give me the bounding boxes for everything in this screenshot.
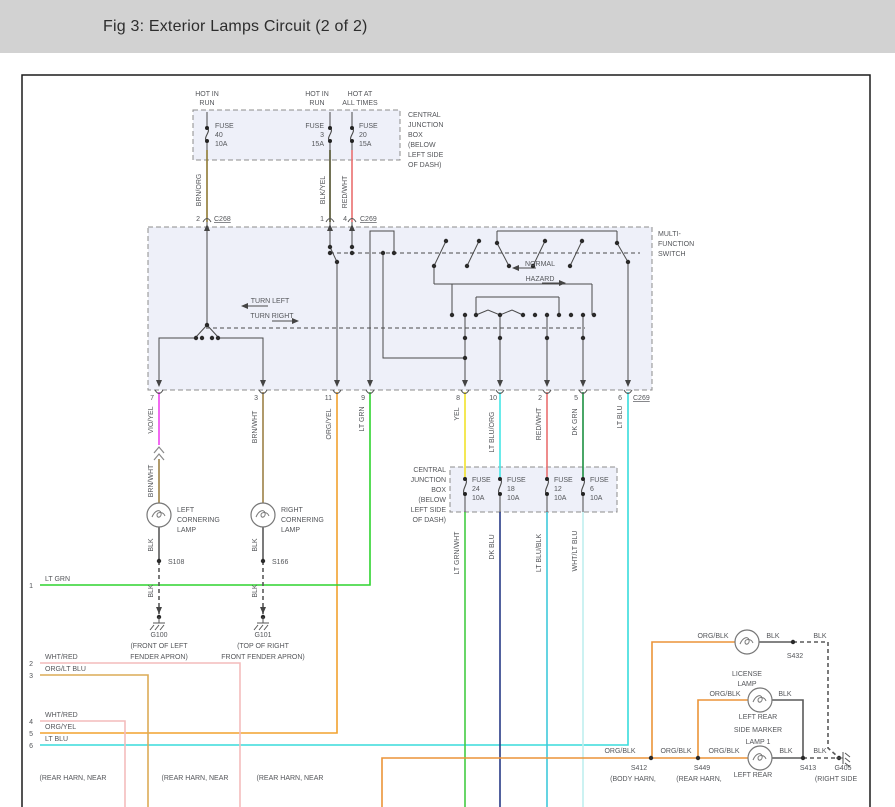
diagram-label: (REAR HARN, NEAR [162, 775, 229, 782]
diagram-label: 10 [489, 395, 497, 402]
diagram-label: S413 [800, 765, 816, 772]
fuse-terminal [328, 126, 332, 130]
diagram-label: LT GRN [45, 576, 70, 583]
wire-wht-red-row2 [40, 663, 240, 807]
junction-dot [450, 313, 454, 317]
diagram-label: 10A [554, 495, 567, 502]
junction-dot [432, 264, 436, 268]
ground-g100-icon [155, 625, 159, 630]
diagram-label: ORG/YEL [326, 408, 333, 439]
diagram-label: 2 [29, 661, 33, 668]
diagram-label: LAMP [177, 527, 196, 534]
diagram-label: (BELOW [418, 497, 446, 504]
diagram-label: 2 [538, 395, 542, 402]
junction-dot [463, 336, 467, 340]
wire-org-yel [40, 392, 337, 733]
junction-dot [801, 756, 805, 760]
diagram-label: 12 [554, 486, 562, 493]
junction-dot [521, 313, 525, 317]
diagram-label: S108 [168, 559, 184, 566]
diagram-label: SIDE MARKER [734, 727, 782, 734]
diagram-label: FUNCTION [658, 241, 694, 248]
diagram-label: HOT AT [348, 91, 373, 98]
diagram-label: BLK [252, 538, 259, 552]
junction-dot [568, 264, 572, 268]
diagram-label: S412 [631, 765, 647, 772]
diagram-label: JUNCTION [408, 122, 443, 129]
diagram-label: 3 [29, 673, 33, 680]
diagram-label: BLK [778, 691, 792, 698]
junction-dot [498, 336, 502, 340]
left-rear-side-marker-lamp-2-icon [748, 746, 772, 770]
fuse-terminal [581, 477, 585, 481]
diagram-label: LAMP [737, 681, 756, 688]
fuse-terminal [498, 492, 502, 496]
diagram-label: 10A [590, 495, 603, 502]
diagram-label: 1 [29, 583, 33, 590]
junction-dot [580, 239, 584, 243]
diagram-label: LAMP 1 [746, 739, 771, 746]
junction-dot [261, 559, 265, 563]
diagram-label: RUN [309, 100, 324, 107]
ground-g100-icon [160, 625, 164, 630]
junction-dot [592, 313, 596, 317]
diagram-label: ORG/YEL [45, 724, 76, 731]
diagram-label: BRN/WHT [252, 410, 259, 443]
diagram-label: CENTRAL [408, 112, 441, 119]
ground-g405-icon [845, 758, 850, 762]
junction-dot [498, 313, 502, 317]
diagram-label: FUSE [305, 123, 324, 130]
junction-dot [581, 313, 585, 317]
fuse-terminal [581, 492, 585, 496]
diagram-label: FUSE [215, 123, 234, 130]
diagram-label: BOX [431, 487, 446, 494]
diagram-label: C269 [360, 216, 377, 223]
junction-dot [696, 756, 700, 760]
diagram-label: FENDER APRON) [130, 654, 188, 661]
inline-connector-icon [154, 447, 164, 453]
diagram-label: TURN LEFT [251, 298, 290, 305]
junction-dot [615, 241, 619, 245]
diagram-label: FRONT FENDER APRON) [221, 654, 305, 661]
diagram-label: LEFT SIDE [411, 507, 447, 514]
left-cornering-lamp-icon [147, 503, 171, 527]
diagram-label: LT GRN/WHT [454, 531, 461, 575]
diagram-label: DK GRN [572, 408, 579, 435]
diagram-label: BLK [813, 633, 827, 640]
diagram-label: RUN [199, 100, 214, 107]
junction-dot [335, 260, 339, 264]
junction-dot [507, 264, 511, 268]
diagram-label: ORG/BLK [709, 691, 740, 698]
diagram-label: (RIGHT SIDE [815, 776, 858, 783]
diagram-label: S166 [272, 559, 288, 566]
diagram-label: DK BLU [489, 534, 496, 559]
diagram-label: BLK/YEL [320, 176, 327, 205]
diagram-label: G405 [834, 765, 851, 772]
junction-dot [194, 336, 198, 340]
junction-dot [477, 239, 481, 243]
diagram-label: BLK [148, 538, 155, 552]
junction-dot [350, 251, 354, 255]
diagram-label: 10A [215, 141, 228, 148]
diagram-label: BOX [408, 132, 423, 139]
diagram-label: FUSE [590, 477, 609, 484]
diagram-label: G100 [150, 632, 167, 639]
diagram-label: LEFT [177, 507, 195, 514]
diagram-label: ORG/BLK [604, 748, 635, 755]
diagram-label: 4 [29, 719, 33, 726]
diagram-label: 5 [574, 395, 578, 402]
junction-dot [381, 251, 385, 255]
diagram-label: (BELOW [408, 142, 436, 149]
diagram-label: 10A [507, 495, 520, 502]
junction-dot [495, 241, 499, 245]
fuse-terminal [205, 126, 209, 130]
junction-dot [465, 264, 469, 268]
diagram-label: RED/WHT [536, 407, 543, 440]
fuse-terminal [545, 492, 549, 496]
ground-g405-icon [845, 753, 850, 757]
ground-g101-icon [264, 625, 268, 630]
diagram-label: G101 [254, 632, 271, 639]
diagram-label: 3 [320, 132, 324, 139]
diagram-label: ORG/BLK [708, 748, 739, 755]
diagram-label: LEFT REAR [739, 714, 777, 721]
diagram-label: ALL TIMES [342, 100, 378, 107]
diagram-label: 11 [325, 395, 332, 402]
diagram-label: HAZARD [526, 276, 555, 283]
diagram-label: 5 [29, 731, 33, 738]
central-junction-box-top [193, 110, 400, 160]
diagram-label: BLK [766, 633, 780, 640]
multi-function-switch-box [148, 227, 652, 390]
wiring-diagram: HOT INRUNHOT INRUNHOT ATALL TIMESFUSE401… [0, 53, 895, 807]
diagram-label: 7 [150, 395, 154, 402]
junction-dot [328, 251, 332, 255]
junction-dot [649, 756, 653, 760]
fuse-terminal [463, 492, 467, 496]
diagram-label: SWITCH [658, 251, 686, 258]
fuse-terminal [350, 126, 354, 130]
left-rear-side-marker-lamp-1-icon [748, 688, 772, 712]
diagram-label: 4 [343, 216, 347, 223]
diagram-label: HOT IN [305, 91, 329, 98]
fuse-terminal [328, 139, 332, 143]
diagram-label: (REAR HARN, NEAR [40, 775, 107, 782]
diagram-label: BRN/WHT [148, 464, 155, 497]
junction-dot [216, 336, 220, 340]
junction-dot [463, 356, 467, 360]
junction-dot [626, 260, 630, 264]
diagram-label: HOT IN [195, 91, 219, 98]
diagram-label: (BODY HARN, [610, 776, 656, 783]
diagram-label: OF DASH) [413, 517, 446, 524]
diagram-label: WHT/LT BLU [572, 531, 579, 572]
diagram-label: S432 [787, 653, 803, 660]
diagram-label: 18 [507, 486, 515, 493]
diagram-label: ORG/LT BLU [45, 666, 86, 673]
diagram-label: FUSE [472, 477, 491, 484]
diagram-label: LT BLU [45, 736, 68, 743]
diagram-label: JUNCTION [411, 477, 446, 484]
diagram-label: 3 [254, 395, 258, 402]
junction-dot [328, 245, 332, 249]
diagram-label: (REAR HARN, [676, 776, 722, 783]
fuse-terminal [205, 139, 209, 143]
diagram-label: ORG/BLK [697, 633, 728, 640]
diagram-label: LEFT REAR [734, 772, 772, 779]
diagram-label: LAMP [281, 527, 300, 534]
diagram-label: 6 [29, 743, 33, 750]
diagram-label: 10A [472, 495, 485, 502]
arrow-icon [260, 607, 266, 614]
diagram-label: (FRONT OF LEFT [130, 643, 188, 650]
ground-g100-icon [150, 625, 154, 630]
license-lamp-icon [735, 630, 759, 654]
diagram-label: 15A [312, 141, 325, 148]
fuse-terminal [545, 477, 549, 481]
title-bar: Fig 3: Exterior Lamps Circuit (2 of 2) [0, 0, 895, 53]
junction-dot [543, 239, 547, 243]
diagram-label: RED/WHT [342, 175, 349, 208]
diagram-label: WHT/RED [45, 654, 78, 661]
diagram-label: MULTI- [658, 231, 681, 238]
junction-dot [545, 313, 549, 317]
diagram-label: 15A [359, 141, 372, 148]
diagram-label: LICENSE [732, 671, 762, 678]
diagram-border [22, 75, 870, 807]
diagram-label: CORNERING [281, 517, 324, 524]
diagram-label: BRN/ORG [196, 174, 203, 207]
fuse-terminal [350, 139, 354, 143]
diagram-label: VIO/YEL [148, 406, 155, 433]
diagram-label: LEFT SIDE [408, 152, 444, 159]
diagram-label: BLK [148, 584, 155, 598]
diagram-label: 1 [320, 216, 324, 223]
junction-dot [157, 559, 161, 563]
right-cornering-lamp-icon [251, 503, 275, 527]
diagram-label: BLK [813, 748, 827, 755]
junction-dot [474, 313, 478, 317]
diagram-label: BLK [779, 748, 793, 755]
diagram-label: 24 [472, 486, 480, 493]
diagram-label: 9 [361, 395, 365, 402]
junction-dot [545, 336, 549, 340]
ground-g101-icon [254, 625, 258, 630]
diagram-label: (REAR HARN, NEAR [257, 775, 324, 782]
diagram-label: RIGHT [281, 507, 304, 514]
junction-dot [569, 313, 573, 317]
diagram-label: 40 [215, 132, 223, 139]
junction-dot [392, 251, 396, 255]
diagram-label: 2 [196, 216, 200, 223]
junction-dot [205, 323, 209, 327]
junction-dot [463, 313, 467, 317]
junction-dot [210, 336, 214, 340]
diagram-label: C268 [214, 216, 231, 223]
diagram-label: 20 [359, 132, 367, 139]
diagram-label: TURN RIGHT [250, 313, 294, 320]
diagram-label: 6 [618, 395, 622, 402]
junction-dot [533, 313, 537, 317]
diagram-label: LT BLU [617, 405, 624, 428]
diagram-label: BLK [252, 584, 259, 598]
diagram-label: NORMAL [525, 261, 555, 268]
wire-lt-grn [40, 392, 370, 585]
diagram-label: OF DASH) [408, 162, 441, 169]
diagram-label: (TOP OF RIGHT [237, 643, 290, 650]
junction-dot [200, 336, 204, 340]
fuse-terminal [463, 477, 467, 481]
diagram-label: CORNERING [177, 517, 220, 524]
ground-g101-icon [259, 625, 263, 630]
diagram-label: FUSE [554, 477, 573, 484]
diagram-label: YEL [454, 407, 461, 420]
junction-dot [791, 640, 795, 644]
diagram-label: CENTRAL [413, 467, 446, 474]
junction-dot [444, 239, 448, 243]
arrow-icon [156, 607, 162, 614]
figure-title: Fig 3: Exterior Lamps Circuit (2 of 2) [103, 18, 368, 36]
diagram-label: LT BLU/ORG [489, 412, 496, 453]
diagram-label: LT BLU/BLK [536, 534, 543, 573]
junction-dot [557, 313, 561, 317]
diagram-label: FUSE [359, 123, 378, 130]
diagram-label: LT GRN [359, 406, 366, 431]
diagram-label: ORG/BLK [660, 748, 691, 755]
diagram-label: WHT/RED [45, 712, 78, 719]
fuse-terminal [498, 477, 502, 481]
diagram-label: FUSE [507, 477, 526, 484]
diagram-label: 6 [590, 486, 594, 493]
junction-dot [581, 336, 585, 340]
junction-dot [350, 245, 354, 249]
diagram-label: S449 [694, 765, 710, 772]
wire-blk-s432-drop [828, 642, 837, 756]
diagram-label: 8 [456, 395, 460, 402]
diagram-label: C269 [633, 395, 650, 402]
wire-wht-red-row4 [40, 721, 125, 807]
